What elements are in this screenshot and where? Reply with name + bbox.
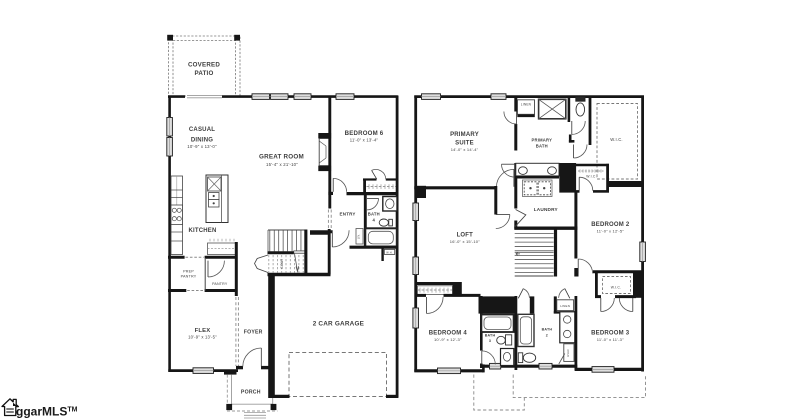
svg-text:2 CAR GARAGE: 2 CAR GARAGE [313, 320, 365, 327]
svg-text:BATH: BATH [542, 328, 553, 332]
svg-text:HVAC: HVAC [566, 349, 570, 357]
svg-text:11'-0" x 13'-4": 11'-0" x 13'-4" [350, 138, 379, 143]
svg-text:BEDROOM 3: BEDROOM 3 [591, 330, 630, 336]
svg-text:SUITE: SUITE [455, 141, 474, 147]
svg-text:10'-9" x 12'-3": 10'-9" x 12'-3" [434, 337, 462, 342]
svg-text:11'-0" x 11'-3": 11'-0" x 11'-3" [597, 337, 624, 342]
svg-text:W.I.C.: W.I.C. [611, 285, 621, 289]
svg-text:ENTRY: ENTRY [340, 212, 356, 217]
svg-text:10'-9" x 13'-5": 10'-9" x 13'-5" [188, 335, 217, 340]
svg-text:PANTRY: PANTRY [212, 282, 228, 286]
svg-text:FLEX: FLEX [195, 328, 211, 334]
svg-text:PATIO: PATIO [195, 70, 214, 77]
svg-text:LIN.: LIN. [357, 234, 361, 240]
svg-text:10'-9" x 13'-0": 10'-9" x 13'-0" [187, 144, 217, 149]
svg-text:14'-0" x 14'-4": 14'-0" x 14'-4" [451, 147, 479, 152]
svg-text:BEDROOM 4: BEDROOM 4 [429, 331, 468, 337]
svg-text:LOFT: LOFT [457, 232, 474, 238]
svg-text:PRIMARY: PRIMARY [450, 132, 479, 138]
svg-text:KITCHEN: KITCHEN [188, 228, 216, 234]
svg-text:BATH: BATH [536, 144, 548, 149]
svg-text:FOYER: FOYER [244, 330, 263, 336]
svg-text:BEDROOM 2: BEDROOM 2 [591, 222, 630, 228]
svg-text:16'-0" x 15'-10": 16'-0" x 15'-10" [450, 239, 480, 244]
svg-text:W.H.: W.H. [386, 250, 392, 254]
svg-text:DINING: DINING [191, 138, 213, 144]
svg-text:BEDROOM 6: BEDROOM 6 [345, 130, 384, 137]
svg-text:LAUNDRY: LAUNDRY [534, 207, 559, 212]
svg-text:PORCH: PORCH [241, 390, 261, 396]
svg-text:CASUAL: CASUAL [189, 127, 215, 133]
svg-text:BATH: BATH [368, 211, 380, 216]
svg-text:2: 2 [546, 334, 548, 338]
svg-text:PANTRY: PANTRY [181, 274, 197, 278]
svg-text:GREAT ROOM: GREAT ROOM [259, 153, 304, 160]
svg-text:COAT: COAT [280, 259, 284, 269]
svg-text:3: 3 [489, 339, 491, 343]
svg-text:15'-4" x 21'-10": 15'-4" x 21'-10" [266, 162, 298, 167]
svg-text:W.I.C.: W.I.C. [610, 137, 623, 142]
svg-text:PREP: PREP [183, 270, 194, 274]
svg-text:LINEN: LINEN [560, 304, 570, 308]
svg-text:COVERED: COVERED [188, 62, 220, 69]
svg-text:BATH: BATH [485, 333, 496, 337]
svg-text:PRIMARY: PRIMARY [532, 137, 553, 142]
svg-text:LINEN: LINEN [521, 102, 532, 106]
svg-text:11'-0" x 12'-5": 11'-0" x 12'-5" [597, 229, 625, 234]
svg-text:W.I.C.: W.I.C. [586, 175, 596, 179]
